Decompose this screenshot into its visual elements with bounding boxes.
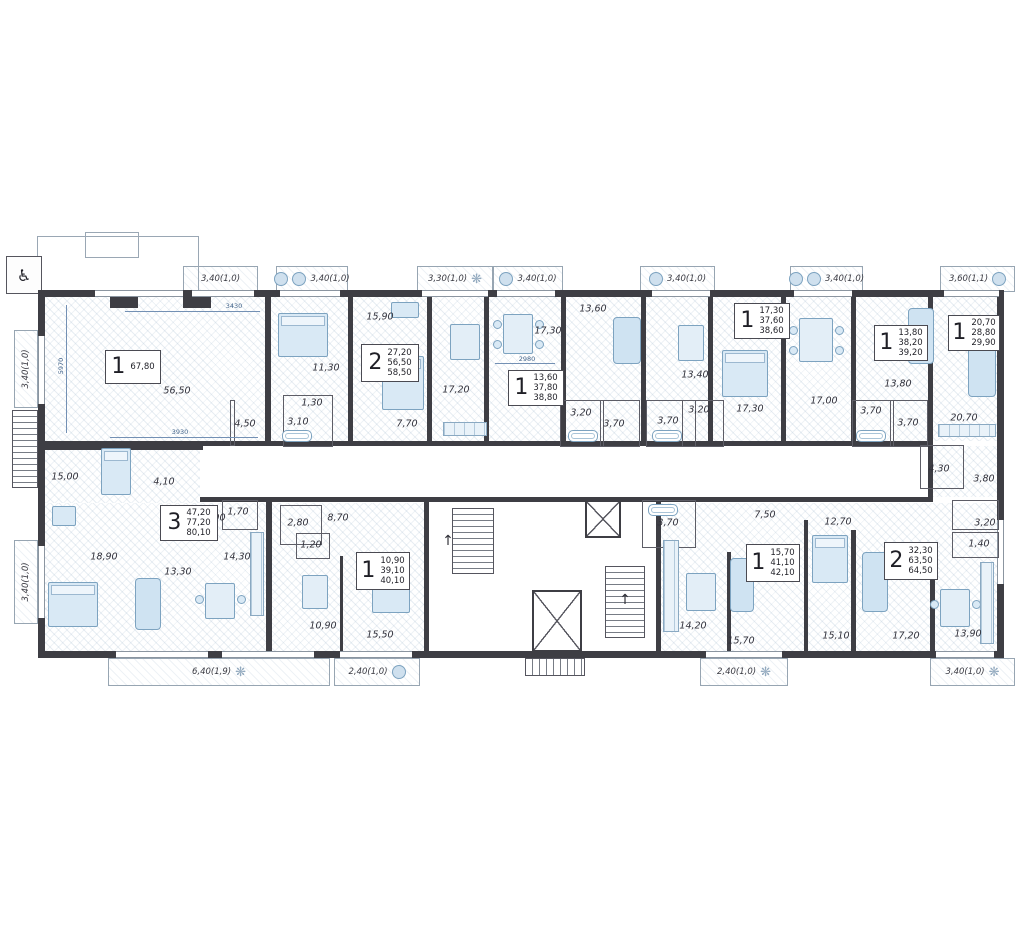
wall [804,520,808,658]
elevator-shaft [585,500,621,538]
balcony-label: 3,40(1,0) [21,349,31,388]
unit-area: 20,70 [971,318,995,328]
room-area-label: 3,80 [973,474,994,485]
balcony: 2,40(1,0) ❋ [700,658,788,686]
window [944,290,999,297]
wall [348,290,353,446]
balcony: 3,40(1,0) [493,266,563,292]
balcony-label: 6,40(1,9) [192,667,231,677]
room-area-label: 17,00 [810,396,837,407]
unit-area: 38,20 [898,338,922,348]
corridor [203,446,933,497]
room-area-label: 14,20 [679,621,706,632]
unit-info-box: 1 13,80 38,20 39,20 [874,325,928,361]
window [422,290,488,297]
balcony: 3,40(1,0) [276,266,348,292]
dimension-label: 3930 [172,428,189,436]
room-area-label: 3,70 [657,416,678,427]
bathtub [856,430,886,442]
room-area-label: 15,00 [51,472,78,483]
window [192,290,254,297]
unit-area: 56,50 [387,358,411,368]
room-area-label: 1,30 [301,398,322,409]
window [652,290,710,297]
room-area-label: 17,30 [534,326,561,337]
stair-direction-arrow: ↑ [442,533,454,549]
balcony: 3,40(1,0) [14,330,38,408]
unit-area: 37,80 [533,383,557,393]
balcony-furniture-icon [274,272,288,286]
window [340,651,412,658]
balcony-label: 3,40(1,0) [517,274,556,284]
desk [52,506,76,526]
room-area-label: 3,10 [287,417,308,428]
kitchen-counter [443,422,487,436]
room-area-label: 4,50 [234,419,255,430]
window [794,290,852,297]
unit-area: 10,90 [380,556,404,566]
balcony-label: 3,40(1,0) [946,667,985,677]
chair [195,595,204,604]
unit-area: 29,90 [971,338,995,348]
balcony: 3,40(1,0) [640,266,715,292]
balcony-furniture-icon [807,272,821,286]
chair [835,326,844,335]
dining-table [678,325,704,361]
dimension-line [125,311,260,312]
window [38,336,45,404]
unit-info-box: 2 27,20 56,50 58,50 [361,344,419,382]
room-area-label: 4,30 [928,464,949,475]
unit-rooms-count: 1 [361,560,375,582]
unit-area: 80,10 [186,528,210,538]
balcony: 3,40(1,0) ❋ [930,658,1015,686]
window [38,546,45,618]
room-area-label: 10,90 [309,621,336,632]
unit-area: 63,50 [908,556,932,566]
room-area-label: 3,20 [570,408,591,419]
unit-rooms-count: 1 [740,310,754,332]
balcony-label: 3,40(1,0) [310,274,349,284]
room-area-label: 7,70 [396,419,417,430]
room-area-label: 1,70 [227,507,248,518]
unit-area: 37,60 [759,316,783,326]
balcony-label: 3,30(1,0) [428,274,467,284]
balcony-furniture-icon [789,272,803,286]
balcony-label: 3,40(1,0) [825,274,864,284]
wall [340,556,343,658]
balcony-furniture-icon [649,272,663,286]
unit-info-box: 1 17,30 37,60 38,60 [734,303,790,339]
room-area-label: 3,70 [860,406,881,417]
unit-area: 39,20 [898,348,922,358]
unit-area: 32,30 [908,546,932,556]
room-area-label: 20,70 [950,413,977,424]
room-area-label: 13,80 [884,379,911,390]
bed [48,582,98,627]
unit-area: 28,80 [971,328,995,338]
window [95,290,183,297]
window [936,651,994,658]
unit-area: 15,70 [770,548,794,558]
balcony: 6,40(1,9) ❋ [108,658,330,686]
room-area-label: 18,90 [90,552,117,563]
unit-area: 42,10 [770,568,794,578]
window [497,290,555,297]
bathtub [648,504,678,516]
window [222,651,314,658]
room-area-label: 3,70 [657,518,678,529]
unit-info-box: 1 20,70 28,80 29,90 [948,315,1000,351]
room-area-label: 56,50 [163,386,190,397]
room-area-label: 13,30 [164,567,191,578]
wall [266,497,272,658]
dining-table [450,324,480,360]
chair [930,600,939,609]
unit-area: 38,80 [533,393,557,403]
balcony: 3,40(1,0) [14,540,38,624]
unit-area: 77,20 [186,518,210,528]
room-area-label: 13,60 [579,304,606,315]
unit-area: 47,20 [186,508,210,518]
wall [427,290,432,446]
wall [424,497,429,658]
balcony-furniture-icon [392,665,406,679]
unit-rooms-count: 1 [514,377,528,399]
unit-area: 27,20 [387,348,411,358]
dimension-label: 5970 [57,358,65,375]
bed [101,448,131,495]
wall [265,290,271,446]
dining-table [686,573,716,611]
sofa [613,317,641,364]
room-area-label: 14,30 [223,552,250,563]
bed [278,313,328,357]
chair [835,346,844,355]
plant-icon: ❋ [471,273,482,286]
room-area-label: 4,10 [153,477,174,488]
balcony-label: 3,40(1,0) [201,274,240,284]
room-area-label: 15,70 [727,636,754,647]
room-area-label: 15,10 [822,631,849,642]
room-area-label: 3,20 [974,518,995,529]
unit-area: 41,10 [770,558,794,568]
balcony: 2,40(1,0) [334,658,420,686]
unit-rooms-count: 1 [879,332,893,354]
unit-area: 38,60 [759,326,783,336]
balcony: 3,40(1,0) [790,266,863,292]
kitchen-counter [250,532,264,616]
unit-area: 13,60 [533,373,557,383]
room-area-label: 3,20 [688,405,709,416]
room-area-label: 15,90 [366,312,393,323]
chair [535,340,544,349]
window [280,290,340,297]
unit-info-box: 1 10,90 39,10 40,10 [356,552,410,590]
bathtub [568,430,598,442]
kitchen-counter [938,424,996,437]
bathtub [652,430,682,442]
balcony-label: 3,60(1,1) [949,274,988,284]
balcony-label: 3,40(1,0) [667,274,706,284]
unit-area: 17,30 [759,306,783,316]
bed [722,350,768,397]
unit-area: 39,10 [380,566,404,576]
unit-rooms-count: 2 [889,550,903,572]
kitchen-counter [980,562,994,644]
dining-table [799,318,833,362]
room-area-label: 11,30 [312,363,339,374]
room-area-label: 1,20 [300,540,321,551]
room-area-label: 12,70 [824,517,851,528]
unit-info-box: 3 47,20 77,20 80,10 [160,505,218,541]
room-area-label: 17,20 [442,385,469,396]
unit-area: 13,80 [898,328,922,338]
balcony-label: 3,40(1,0) [21,562,31,601]
room-area-label: 17,20 [892,631,919,642]
unit-info-box: 1 13,60 37,80 38,80 [508,370,564,406]
bed [812,535,848,583]
dimension-line [66,305,67,433]
dining-table [302,575,328,609]
wheelchair-access-box: ♿ [6,256,42,294]
sofa [968,345,996,397]
unit-area: 40,10 [380,576,404,586]
chair [789,346,798,355]
floor-plan: 3,40(1,0) 3,40(1,0) 3,30(1,0) ❋ 3,40(1,0… [0,0,1024,926]
unit-rooms-count: 1 [111,356,125,378]
balcony-label: 2,40(1,0) [348,667,387,677]
balcony-label: 2,40(1,0) [717,667,756,677]
dimension-line [495,363,555,364]
unit-info-box: 1 67,80 [105,350,161,384]
unit-area: 64,50 [908,566,932,576]
window [116,651,208,658]
elevator-shaft [532,590,582,652]
sofa [135,578,161,630]
chair [237,595,246,604]
room-area-label: 17,30 [736,404,763,415]
dining-table [940,589,970,627]
entrance-canopy-roof [85,232,139,258]
dining-table [503,314,533,354]
unit-rooms-count: 2 [368,352,382,374]
window [706,651,782,658]
wheelchair-icon: ♿ [17,266,31,285]
wall [851,530,856,658]
chair [493,320,502,329]
plant-icon: ❋ [235,666,246,679]
entrance-steps [525,658,585,676]
stairwell [452,508,494,574]
balcony: 3,60(1,1) [940,266,1015,292]
room-area-label: 13,90 [954,629,981,640]
chair [493,340,502,349]
unit-rooms-count: 1 [952,322,966,344]
balcony-furniture-icon [292,272,306,286]
plant-icon: ❋ [989,666,1000,679]
room-area-label: 8,70 [327,513,348,524]
balcony: 3,30(1,0) ❋ [417,266,493,292]
desk [391,302,419,318]
chair [789,326,798,335]
unit-info-box: 1 15,70 41,10 42,10 [746,544,800,582]
dimension-line [110,437,258,438]
dimension-label: 2980 [519,355,536,363]
room-area-label: 15,50 [366,630,393,641]
unit-info-box: 2 32,30 63,50 64,50 [884,542,938,580]
room-area-label: 2,80 [287,518,308,529]
dining-table [205,583,235,619]
room-area-label: 1,40 [968,539,989,550]
exterior-stair [12,410,38,488]
balcony-furniture-icon [992,272,1006,286]
bathtub [282,430,312,442]
room-area-label: 3,70 [897,418,918,429]
balcony-furniture-icon [499,272,513,286]
plant-icon: ❋ [760,666,771,679]
dimension-label: 3430 [226,302,243,310]
unit-area: 58,50 [387,368,411,378]
unit-rooms-count: 1 [751,552,765,574]
stair-direction-arrow: ↑ [619,592,631,608]
unit-area: 67,80 [130,362,154,372]
room-area-label: 3,70 [603,419,624,430]
wall [200,497,933,502]
room-area-label: 7,50 [754,510,775,521]
unit-rooms-count: 3 [167,512,181,534]
kitchen-counter [663,540,679,632]
room-area-label: 13,40 [681,370,708,381]
